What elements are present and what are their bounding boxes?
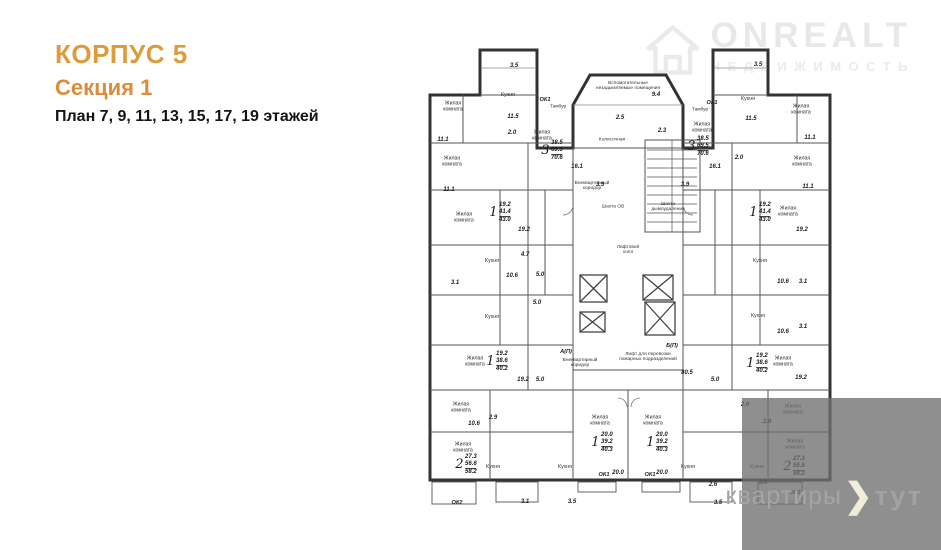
section-title: Секция 1 bbox=[55, 76, 319, 100]
tut-word: тут bbox=[875, 481, 923, 512]
apartment-area-stamp: 227.356.658.2 bbox=[783, 456, 804, 478]
title-block: КОРПУС 5 Секция 1 План 7, 9, 11, 13, 15,… bbox=[55, 40, 319, 125]
plan-stamps-layer: 338.569.570.6338.569.570.6119.241.443.01… bbox=[428, 30, 832, 512]
apartment-area-stamp: 119.238.640.2 bbox=[486, 351, 507, 373]
floors-subtitle: План 7, 9, 11, 13, 15, 17, 19 этажей bbox=[55, 108, 319, 126]
floor-plan: Жилая комнатаЖилая комнатаЖилая комнатаЖ… bbox=[428, 30, 832, 512]
apartment-area-stamp: 120.039.240.3 bbox=[646, 432, 667, 454]
apartment-area-stamp: 119.241.443.0 bbox=[489, 202, 510, 224]
building-title: КОРПУС 5 bbox=[55, 40, 319, 69]
apartment-area-stamp: 119.238.640.2 bbox=[746, 353, 767, 375]
apartment-area-stamp: 120.039.240.3 bbox=[591, 432, 612, 454]
floor-plan-page: КОРПУС 5 Секция 1 План 7, 9, 11, 13, 15,… bbox=[0, 0, 941, 550]
apartment-area-stamp: 227.356.658.2 bbox=[455, 454, 476, 476]
apartment-area-stamp: 119.241.443.0 bbox=[749, 202, 770, 224]
apartment-area-stamp: 338.569.570.6 bbox=[687, 136, 708, 158]
chevron-icon: ❯ bbox=[844, 483, 873, 510]
apartment-area-stamp: 338.569.570.6 bbox=[541, 140, 562, 162]
